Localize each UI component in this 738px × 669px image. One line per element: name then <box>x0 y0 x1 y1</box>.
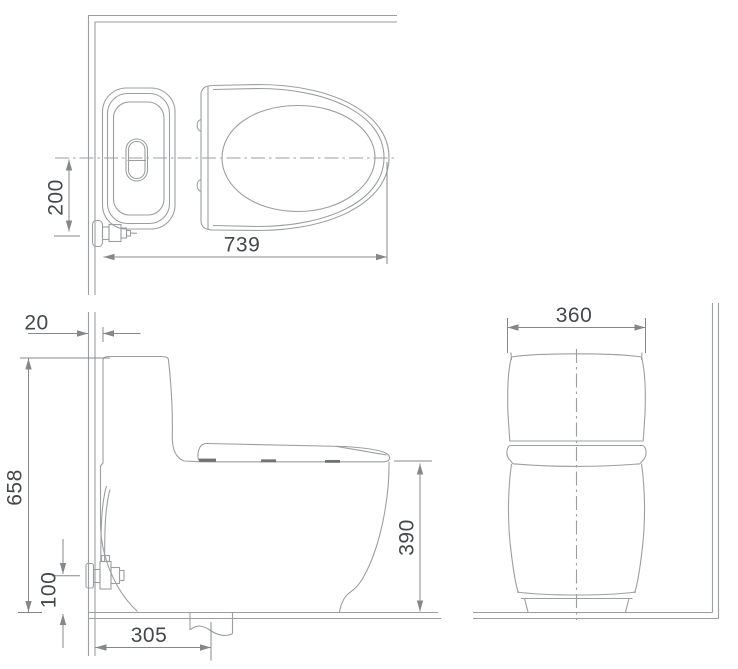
pedestal-right-edge <box>626 599 630 613</box>
seat-rim-left-curve <box>507 446 513 464</box>
tank-left-edge <box>508 357 512 441</box>
pedestal-left-edge <box>525 599 529 613</box>
dim-label-overall-depth: 739 <box>224 234 261 257</box>
hinge-bump-bottom <box>197 180 201 192</box>
seat-hinge-block <box>199 459 216 462</box>
tank-top-profile <box>103 357 169 361</box>
bowl-front-profile <box>339 462 389 613</box>
toilet-dimension-drawing: 739 200 20 658 100 305 390 360 <box>0 0 738 669</box>
inlet-valve-top-wall-plate <box>93 221 103 247</box>
dim-label-inlet-height: 100 <box>38 572 61 609</box>
front-view <box>473 303 719 620</box>
seat-bumper-1 <box>261 459 276 462</box>
inlet-valve-side-wall-plate <box>86 564 94 589</box>
dimension-lines <box>18 160 646 661</box>
seat-bumper-2 <box>325 460 340 463</box>
seat-rim-right-curve <box>640 446 646 464</box>
supply-hose-line-b <box>105 490 110 562</box>
hinge-bump-top <box>197 120 201 132</box>
base-band-upper-line <box>517 592 636 595</box>
dim-label-overall-width: 360 <box>556 304 593 327</box>
dimension-labels: 739 200 20 658 100 305 390 360 <box>4 179 593 647</box>
seat-lid-side-profile <box>198 443 390 461</box>
inlet-valve-side-body <box>100 562 111 590</box>
drawing-geometry <box>55 16 719 657</box>
dim-label-drain-set-out: 305 <box>131 624 168 647</box>
bowl-right-edge <box>635 464 645 593</box>
dim-label-wall-clearance: 20 <box>24 312 48 335</box>
bowl-left-edge <box>508 464 518 593</box>
side-view <box>86 312 441 656</box>
tank-front-profile <box>169 361 203 462</box>
inlet-valve-top-tip2 <box>127 231 131 237</box>
inlet-valve-top-neck <box>103 227 110 240</box>
inlet-valve-top-nut <box>109 225 121 242</box>
dim-label-rim-height: 390 <box>396 519 419 556</box>
inlet-valve-side-tip <box>120 571 125 581</box>
technical-drawing-canvas: 739 200 20 658 100 305 390 360 <box>0 0 738 669</box>
tank-right-edge <box>642 357 646 441</box>
dim-label-inlet-offset: 200 <box>45 179 68 216</box>
dim-label-overall-height: 658 <box>4 469 27 506</box>
